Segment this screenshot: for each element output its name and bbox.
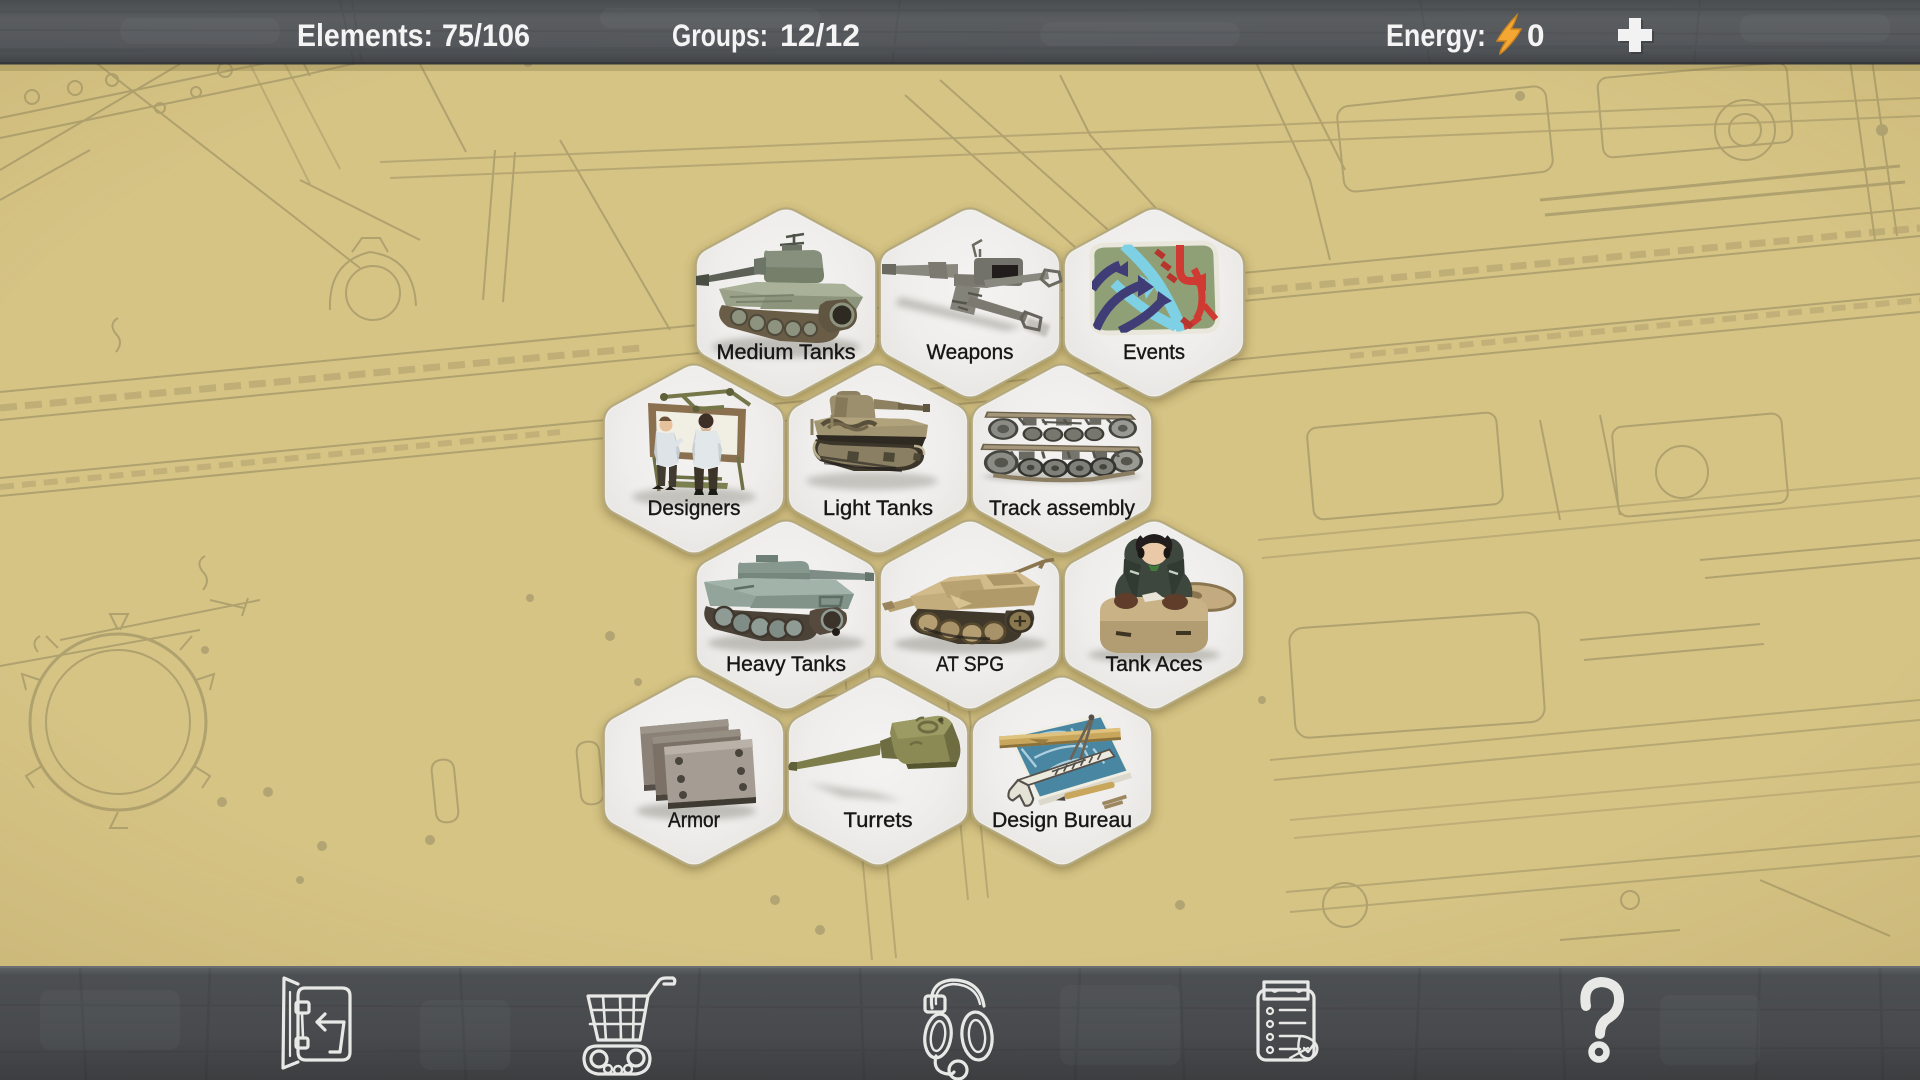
svg-text:Track assembly: Track assembly [989, 496, 1135, 520]
svg-text:12/12: 12/12 [780, 17, 860, 53]
svg-text:Design Bureau: Design Bureau [992, 808, 1132, 832]
svg-text:Events: Events [1123, 340, 1185, 364]
svg-text:Groups:: Groups: [672, 17, 768, 53]
svg-text:Turrets: Turrets [844, 808, 913, 832]
svg-text:Light Tanks: Light Tanks [823, 496, 933, 520]
svg-text:Heavy Tanks: Heavy Tanks [726, 652, 846, 676]
svg-text:Energy:: Energy: [1386, 17, 1486, 53]
svg-text:Medium Tanks: Medium Tanks [717, 340, 856, 364]
svg-text:0: 0 [1527, 17, 1545, 53]
svg-text:AT SPG: AT SPG [936, 652, 1004, 676]
svg-text:75/106: 75/106 [442, 17, 530, 53]
svg-text:Tank Aces: Tank Aces [1106, 652, 1203, 676]
svg-text:Elements:: Elements: [297, 17, 433, 53]
svg-text:Weapons: Weapons [927, 340, 1014, 364]
svg-text:Designers: Designers [648, 496, 741, 520]
svg-text:Armor: Armor [668, 808, 720, 832]
